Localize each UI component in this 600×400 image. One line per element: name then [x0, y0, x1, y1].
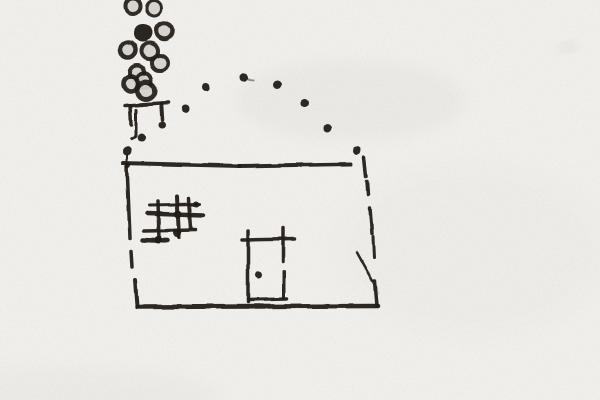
scanned-paper-page: [0, 0, 600, 400]
house-sketch-canvas: [0, 0, 600, 400]
paper-grain: [0, 0, 600, 400]
